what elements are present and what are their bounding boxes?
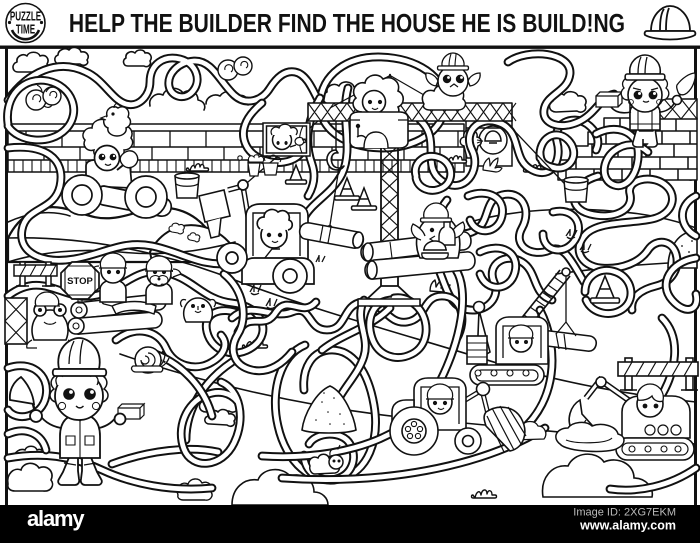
svg-text:STOP: STOP <box>67 276 93 287</box>
svg-text:TIME: TIME <box>16 23 35 37</box>
svg-text:Image ID: 2XG7EKM: Image ID: 2XG7EKM <box>573 507 676 519</box>
svg-text:www.alamy.com: www.alamy.com <box>579 519 676 533</box>
svg-text:HELP THE BUILDER FIND THE HOUS: HELP THE BUILDER FIND THE HOUSE HE IS BU… <box>69 10 625 39</box>
svg-text:alamy: alamy <box>27 506 85 531</box>
